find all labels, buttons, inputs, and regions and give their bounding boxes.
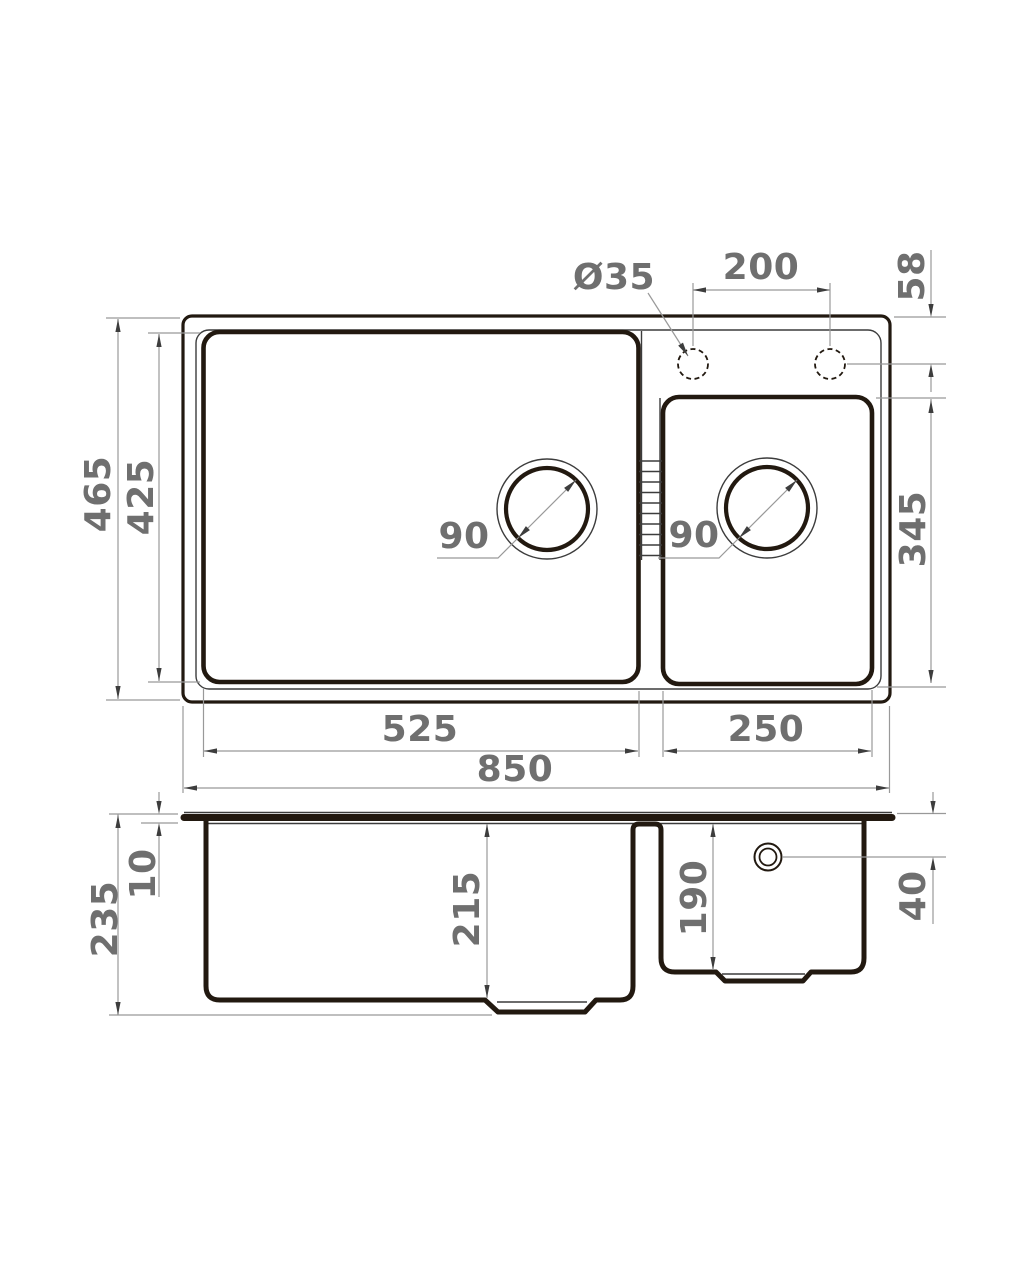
dim-right-bowl-depth: 345	[893, 491, 934, 568]
top-view	[183, 316, 890, 702]
drawing-page: Ø35 200 58 465 425 90 90 345 52	[0, 0, 1024, 1265]
dim-main-bowl-width: 525	[382, 709, 459, 750]
dim-hole-offset: 58	[892, 250, 933, 301]
dim-second-drain: 90	[668, 515, 719, 556]
faucet-hole-left	[678, 349, 708, 379]
dim-overflow-offset: 40	[893, 870, 934, 921]
sink-deck-inner-edge	[196, 330, 881, 689]
sink-outer-edge	[183, 316, 890, 702]
dim-second-bowl-width: 250	[728, 709, 805, 750]
dim-hole-diameter: Ø35	[573, 257, 655, 298]
dim-rim-thickness: 10	[123, 848, 164, 899]
dim-main-drain: 90	[438, 516, 489, 557]
dim-main-bowl-inner-depth: 215	[447, 871, 488, 948]
dim-second-bowl-inner-depth: 190	[674, 860, 715, 937]
section-view-dimensions: 10 235 215 190 40	[85, 792, 946, 1015]
dim-overall-height: 235	[85, 881, 126, 958]
faucet-hole-right	[815, 349, 845, 379]
dim-hole-spacing: 200	[723, 247, 800, 288]
offset-extension-lines	[847, 317, 946, 364]
divider-strip	[639, 331, 662, 560]
dim-bowl-depth: 425	[121, 459, 162, 536]
dim-overall-width: 850	[477, 749, 554, 790]
main-bowl	[204, 332, 639, 682]
bowls-section-profile	[206, 818, 864, 1012]
section-extension-lines	[109, 814, 946, 1016]
dim-overall-depth: 465	[78, 456, 119, 533]
sink-technical-drawing: Ø35 200 58 465 425 90 90 345 52	[0, 0, 1024, 1265]
overflow-hole	[755, 844, 782, 871]
section-view	[184, 813, 892, 1013]
